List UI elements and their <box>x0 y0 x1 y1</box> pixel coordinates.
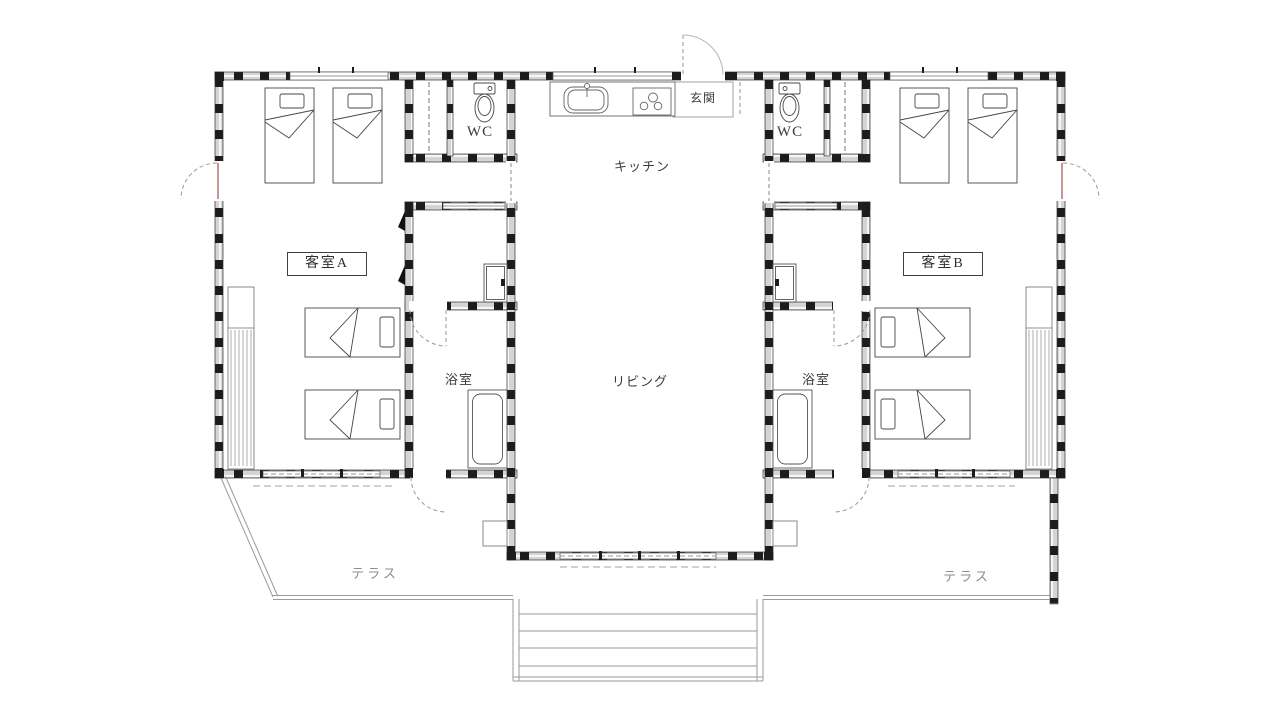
bed-b1 <box>900 88 949 183</box>
room-label-wc-right: WC <box>763 123 817 141</box>
bed-a4 <box>305 390 400 439</box>
bed-b3 <box>875 308 970 357</box>
kitchen-counter <box>550 82 675 116</box>
side-door-right <box>1062 163 1099 199</box>
toilet-right <box>779 83 800 122</box>
terrace-steps <box>513 599 763 681</box>
door-wedges <box>398 211 405 285</box>
washbasin-left <box>484 264 507 302</box>
bed-a2 <box>333 88 382 183</box>
outdoor-units <box>483 521 797 546</box>
bed-a1 <box>265 88 314 183</box>
bed-b4 <box>875 390 970 439</box>
terrace <box>221 477 1058 605</box>
closet-right <box>1026 287 1052 469</box>
room-label-bath-right: 浴室 <box>786 372 846 388</box>
room-label-entrance: 玄関 <box>675 91 731 105</box>
room-label-terrace-right: テラス <box>925 569 1009 585</box>
entrance-door <box>683 35 723 75</box>
bathtub-left <box>468 390 507 468</box>
room-label-living: リビング <box>590 374 690 390</box>
room-label-bath-left: 浴室 <box>429 372 489 388</box>
room-label-wc-left: WC <box>453 123 507 141</box>
bathtub-right <box>773 390 812 468</box>
room-label-guest-b: 客室B <box>903 252 983 276</box>
toilet-left <box>474 83 495 122</box>
room-label-kitchen: キッチン <box>592 159 692 175</box>
kitchen-sink <box>564 84 608 114</box>
washbasin-right <box>773 264 796 302</box>
side-door-left <box>181 163 218 199</box>
room-label-guest-a: 客室A <box>287 252 367 276</box>
kitchen-stove <box>633 88 671 115</box>
room-label-terrace-left: テラス <box>333 566 417 582</box>
closet-left <box>228 287 254 469</box>
floor-plan: 客室A 客室B WC WC キッチン リビング 浴室 浴室 玄関 テラス テラス <box>0 0 1280 720</box>
floor-plan-drawing <box>0 0 1280 720</box>
bed-a3 <box>305 308 400 357</box>
bed-b2 <box>968 88 1017 183</box>
